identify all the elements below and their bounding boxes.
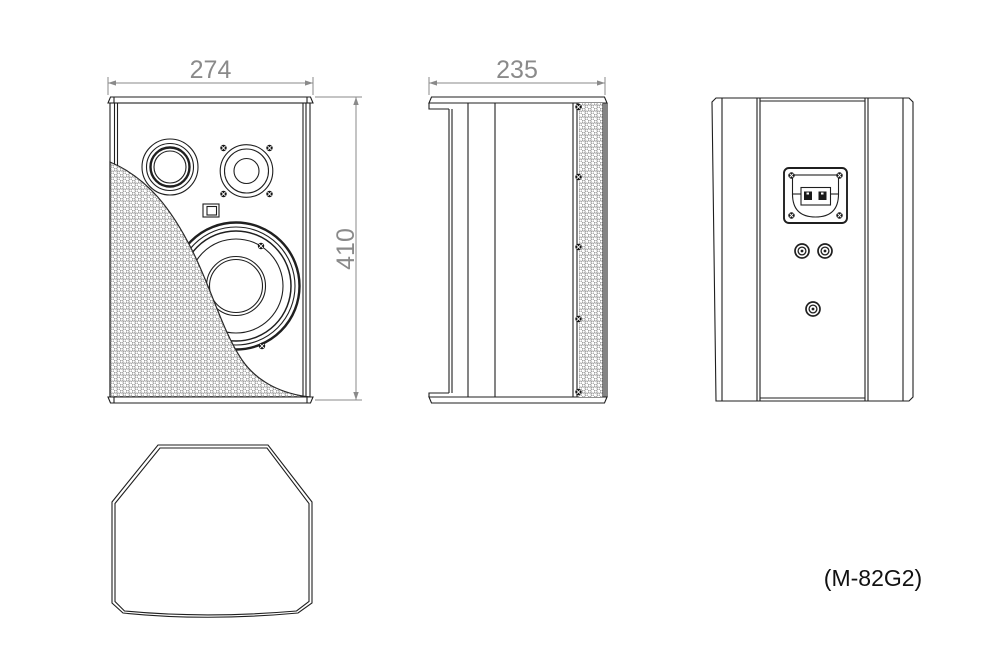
dimension-front-width: 274: [108, 56, 313, 95]
side-top-rear-lip: [429, 103, 449, 109]
binding-post-icon: [806, 302, 820, 316]
binding-post-icon: [795, 244, 809, 258]
screw-icon: [220, 145, 226, 151]
technical-drawing-canvas: 274 410 235: [0, 0, 1000, 664]
screw-icon: [575, 174, 581, 180]
dimension-height-value: 410: [332, 228, 360, 270]
speaker-dimension-drawing: 274 410 235: [0, 0, 1000, 664]
model-label: (M-82G2): [824, 565, 922, 591]
side-front-edge-lines: [603, 103, 607, 397]
top-view: [112, 445, 312, 617]
screw-icon: [788, 212, 794, 218]
screw-icon: [259, 343, 265, 349]
side-seam-lines: [468, 103, 495, 397]
screw-icon: [266, 191, 272, 197]
screw-icon: [266, 145, 272, 151]
screw-icon: [258, 243, 264, 249]
dimension-width-value: 274: [190, 56, 232, 84]
screw-icon: [836, 172, 842, 178]
side-grille-mesh-strip: [579, 103, 603, 397]
front-bottom-cap: [108, 397, 313, 403]
side-view: [429, 97, 607, 403]
screw-icon: [575, 244, 581, 250]
front-top-cap: [108, 97, 313, 103]
rear-connector-plate: [784, 168, 847, 223]
side-top-cap: [429, 97, 607, 103]
screw-icon: [220, 191, 226, 197]
side-back-panel-lines: [449, 109, 452, 393]
dimension-front-height: 410: [315, 97, 362, 400]
side-grille-frame-lines: [573, 103, 577, 397]
front-view: [108, 97, 313, 403]
screw-icon: [575, 104, 581, 110]
side-bottom-cap: [429, 397, 607, 403]
side-bottom-rear-lip: [429, 393, 449, 397]
dimension-depth-value: 235: [496, 56, 538, 84]
dimension-side-depth: 235: [429, 56, 605, 95]
screw-icon: [836, 212, 842, 218]
screw-icon: [575, 316, 581, 322]
screw-icon: [575, 389, 581, 395]
speakon-connector: [801, 188, 831, 206]
rear-view: [712, 98, 913, 401]
screw-icon: [788, 172, 794, 178]
binding-post-icon: [818, 244, 832, 258]
rear-body-outline: [712, 98, 913, 401]
